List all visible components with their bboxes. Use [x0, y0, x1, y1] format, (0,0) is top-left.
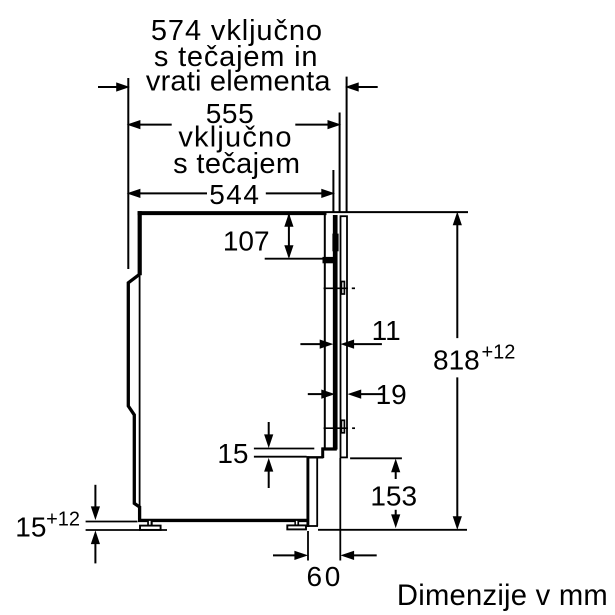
svg-text:19: 19 [376, 379, 407, 410]
svg-text:s tečajem: s tečajem [173, 148, 300, 180]
svg-text:11: 11 [372, 315, 401, 346]
svg-text:15: 15 [217, 438, 248, 469]
svg-text:544: 544 [209, 179, 260, 210]
svg-text:vrati elementa: vrati elementa [146, 66, 331, 98]
svg-text:60: 60 [307, 561, 343, 592]
svg-text:107: 107 [223, 225, 270, 256]
svg-text:153: 153 [370, 480, 417, 511]
svg-text:818: 818 [433, 344, 480, 375]
svg-text:15: 15 [15, 512, 46, 543]
svg-text:Dimenzije v mm: Dimenzije v mm [397, 580, 608, 612]
svg-text:+12: +12 [46, 509, 80, 531]
svg-text:+12: +12 [482, 341, 516, 363]
